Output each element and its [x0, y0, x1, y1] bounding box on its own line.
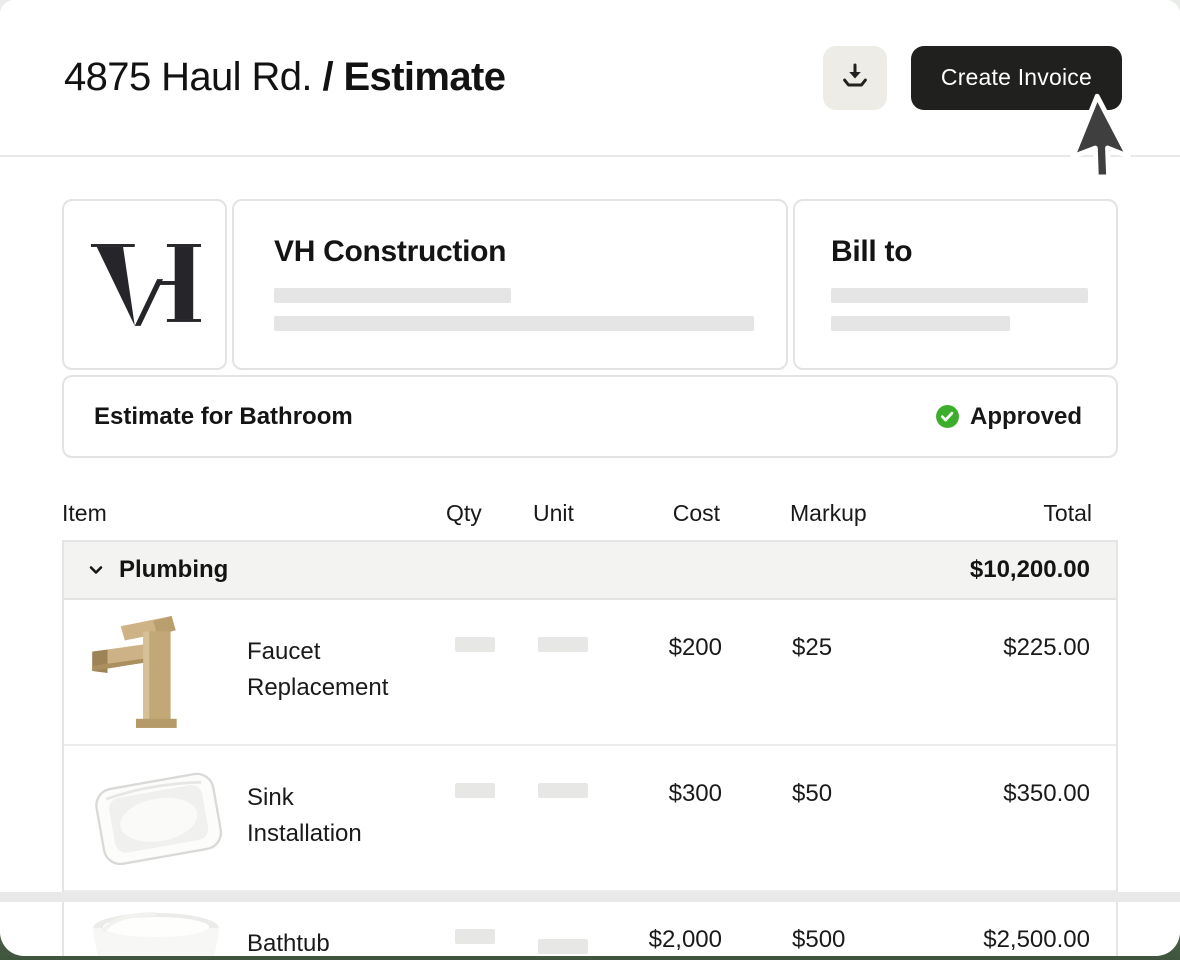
- unit-cell: [520, 600, 610, 744]
- cost-cell: $300: [610, 746, 722, 890]
- page-title: 4875 Haul Rd. / Estimate: [64, 55, 505, 100]
- item-name: Faucet Replacement: [227, 600, 445, 744]
- check-circle-icon: [935, 404, 960, 429]
- bill-to-card: Bill to: [793, 199, 1118, 370]
- total-cell: $225.00: [910, 600, 1116, 744]
- breadcrumb-property: 4875 Haul Rd.: [64, 55, 322, 99]
- status-label: Approved: [970, 403, 1082, 431]
- unit-skeleton: [538, 939, 588, 954]
- column-header-item: Item: [62, 500, 443, 527]
- company-name: VH Construction: [274, 235, 786, 269]
- estimate-page: 4875 Haul Rd. / Estimate Create Invoice: [0, 0, 1180, 956]
- bathtub-product-image: [64, 902, 227, 956]
- column-header-qty: Qty: [443, 500, 518, 527]
- page-header: 4875 Haul Rd. / Estimate Create Invoice: [0, 0, 1180, 157]
- markup-cell: $50: [722, 746, 910, 890]
- bill-to-skeleton-1: [831, 288, 1088, 303]
- cost-cell: $200: [610, 600, 722, 744]
- download-icon: [840, 61, 870, 94]
- company-card: VH Construction: [232, 199, 788, 370]
- qty-skeleton: [455, 929, 495, 944]
- qty-cell: [445, 746, 520, 890]
- faucet-product-image: [64, 600, 227, 744]
- table-row-sink-installation[interactable]: Sink Installation $300 $50 $350.00: [64, 746, 1116, 892]
- company-detail-skeleton-1: [274, 288, 511, 303]
- group-row-plumbing[interactable]: Plumbing $10,200.00: [64, 542, 1116, 600]
- group-total: $10,200.00: [970, 556, 1090, 584]
- column-header-cost: Cost: [608, 500, 720, 527]
- group-label: Plumbing: [119, 556, 228, 584]
- total-cell: $350.00: [910, 746, 1116, 890]
- cost-cell: $2,000: [610, 902, 722, 956]
- markup-cell: $25: [722, 600, 910, 744]
- item-name: Sink Installation: [227, 746, 445, 890]
- breadcrumb-current: / Estimate: [322, 55, 505, 99]
- estimate-table: Item Qty Unit Cost Markup Total Plumbing…: [62, 486, 1118, 956]
- item-name: Bathtub: [227, 902, 445, 956]
- status-badge: Approved: [935, 403, 1082, 431]
- vh-logo-icon: [89, 236, 201, 334]
- qty-skeleton: [455, 637, 495, 652]
- qty-cell: [445, 600, 520, 744]
- download-button[interactable]: [823, 46, 887, 110]
- estimate-info-section: VH Construction Bill to Estimate for Bat…: [62, 199, 1118, 458]
- estimate-status-bar: Estimate for Bathroom Approved: [62, 375, 1118, 458]
- qty-cell: [445, 902, 520, 956]
- column-header-unit: Unit: [518, 500, 608, 527]
- bill-to-skeleton-2: [831, 316, 1010, 331]
- company-detail-skeleton-2: [274, 316, 754, 331]
- header-actions: Create Invoice: [823, 46, 1122, 110]
- chevron-down-icon[interactable]: [86, 560, 106, 580]
- table-header-row: Item Qty Unit Cost Markup Total: [62, 486, 1118, 540]
- unit-cell: [520, 746, 610, 890]
- total-cell: $2,500.00: [910, 902, 1116, 956]
- unit-cell: [520, 902, 610, 956]
- sink-product-image: [64, 746, 227, 890]
- create-invoice-button[interactable]: Create Invoice: [911, 46, 1122, 110]
- table-row-faucet-replacement[interactable]: Faucet Replacement $200 $25 $225.00: [64, 600, 1116, 746]
- row-divider: [0, 892, 1180, 902]
- company-logo-card: [62, 199, 227, 370]
- column-header-total: Total: [908, 500, 1118, 527]
- unit-skeleton: [538, 783, 588, 798]
- column-header-markup: Markup: [720, 500, 908, 527]
- qty-skeleton: [455, 783, 495, 798]
- table-row-bathtub[interactable]: Bathtub $2,000 $500 $2,500.00: [64, 902, 1116, 956]
- table-body: Plumbing $10,200.00: [62, 540, 1118, 956]
- estimate-title: Estimate for Bathroom: [94, 403, 353, 431]
- bill-to-heading: Bill to: [831, 235, 1116, 269]
- markup-cell: $500: [722, 902, 910, 956]
- unit-skeleton: [538, 637, 588, 652]
